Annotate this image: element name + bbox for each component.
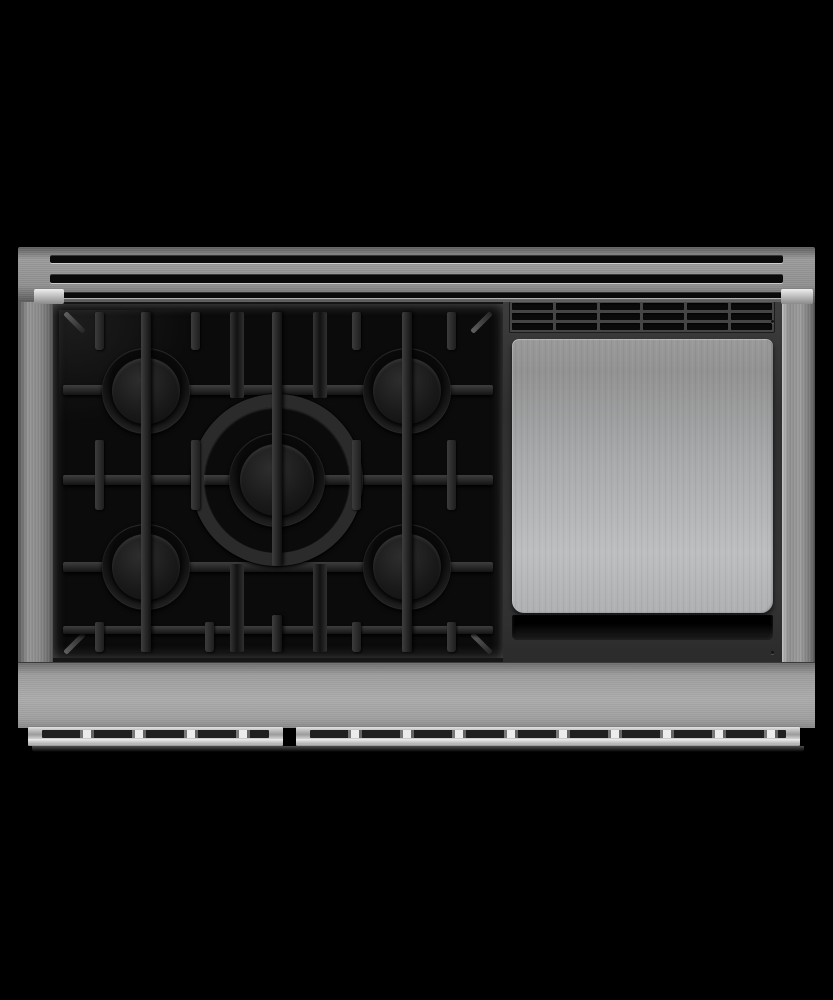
- grate-seam: [230, 564, 244, 652]
- grate-bar: [272, 615, 282, 652]
- handle-rail-left: [28, 727, 283, 746]
- grate-finger: [352, 622, 361, 652]
- griddle-vent-cell: [643, 303, 684, 310]
- griddle-vent-cell: [556, 323, 597, 330]
- product-photo-stage: [0, 0, 833, 1000]
- grate-finger: [447, 440, 456, 510]
- griddle-vent-cell: [512, 303, 553, 310]
- grate-bar: [272, 312, 282, 566]
- grate-seam: [313, 312, 327, 398]
- screw-dot: [771, 651, 774, 654]
- griddle-vent-cell: [556, 303, 597, 310]
- grate-finger: [95, 312, 104, 350]
- grate-seam: [313, 564, 327, 652]
- handle-rail-right: [296, 727, 800, 746]
- griddle-trough: [512, 615, 773, 640]
- rear-vent-strip: [18, 247, 815, 302]
- right-frame-glint: [781, 289, 813, 304]
- griddle-vent-cell: [512, 323, 553, 330]
- griddle-vent-cell: [600, 323, 641, 330]
- base-shadow: [32, 746, 804, 752]
- vent-slot: [50, 293, 783, 298]
- grate-finger: [95, 440, 104, 510]
- griddle-vent-cell: [731, 313, 772, 320]
- griddle-vent-cell: [687, 323, 728, 330]
- griddle-vent-cell: [687, 313, 728, 320]
- grate-finger: [447, 312, 456, 350]
- grate-finger: [352, 312, 361, 350]
- grate-bar: [141, 312, 151, 652]
- gas-cooktop: [53, 302, 503, 662]
- griddle-vent-cell: [731, 303, 772, 310]
- griddle-vent-cell: [600, 313, 641, 320]
- griddle-vent-grid: [509, 300, 775, 333]
- right-steel-frame: [782, 302, 815, 662]
- griddle-vent-cell: [687, 303, 728, 310]
- grate-finger: [191, 440, 200, 510]
- griddle-section: [503, 302, 782, 662]
- griddle-vent-cell: [643, 323, 684, 330]
- grate-finger: [95, 622, 104, 652]
- left-frame-glint: [34, 289, 64, 304]
- left-steel-frame: [18, 302, 53, 662]
- vent-slot: [50, 256, 783, 263]
- rangetop-body: [18, 302, 815, 662]
- cast-iron-grates: [63, 312, 493, 652]
- griddle-vent-cell: [556, 313, 597, 320]
- griddle-plate: [512, 339, 773, 613]
- grate-finger: [191, 312, 200, 350]
- griddle-vent-cell: [512, 313, 553, 320]
- rangetop: [18, 247, 815, 753]
- grate-finger: [352, 440, 361, 510]
- griddle-vent-cell: [600, 303, 641, 310]
- screw-dot: [771, 320, 774, 323]
- griddle-vent-cell: [643, 313, 684, 320]
- vent-slot: [50, 275, 783, 283]
- griddle-vent-cell: [731, 323, 772, 330]
- grate-seam: [230, 312, 244, 398]
- grate-finger: [447, 622, 456, 652]
- grate-finger: [205, 622, 214, 652]
- front-apron: [18, 662, 815, 728]
- grate-bar: [402, 312, 412, 652]
